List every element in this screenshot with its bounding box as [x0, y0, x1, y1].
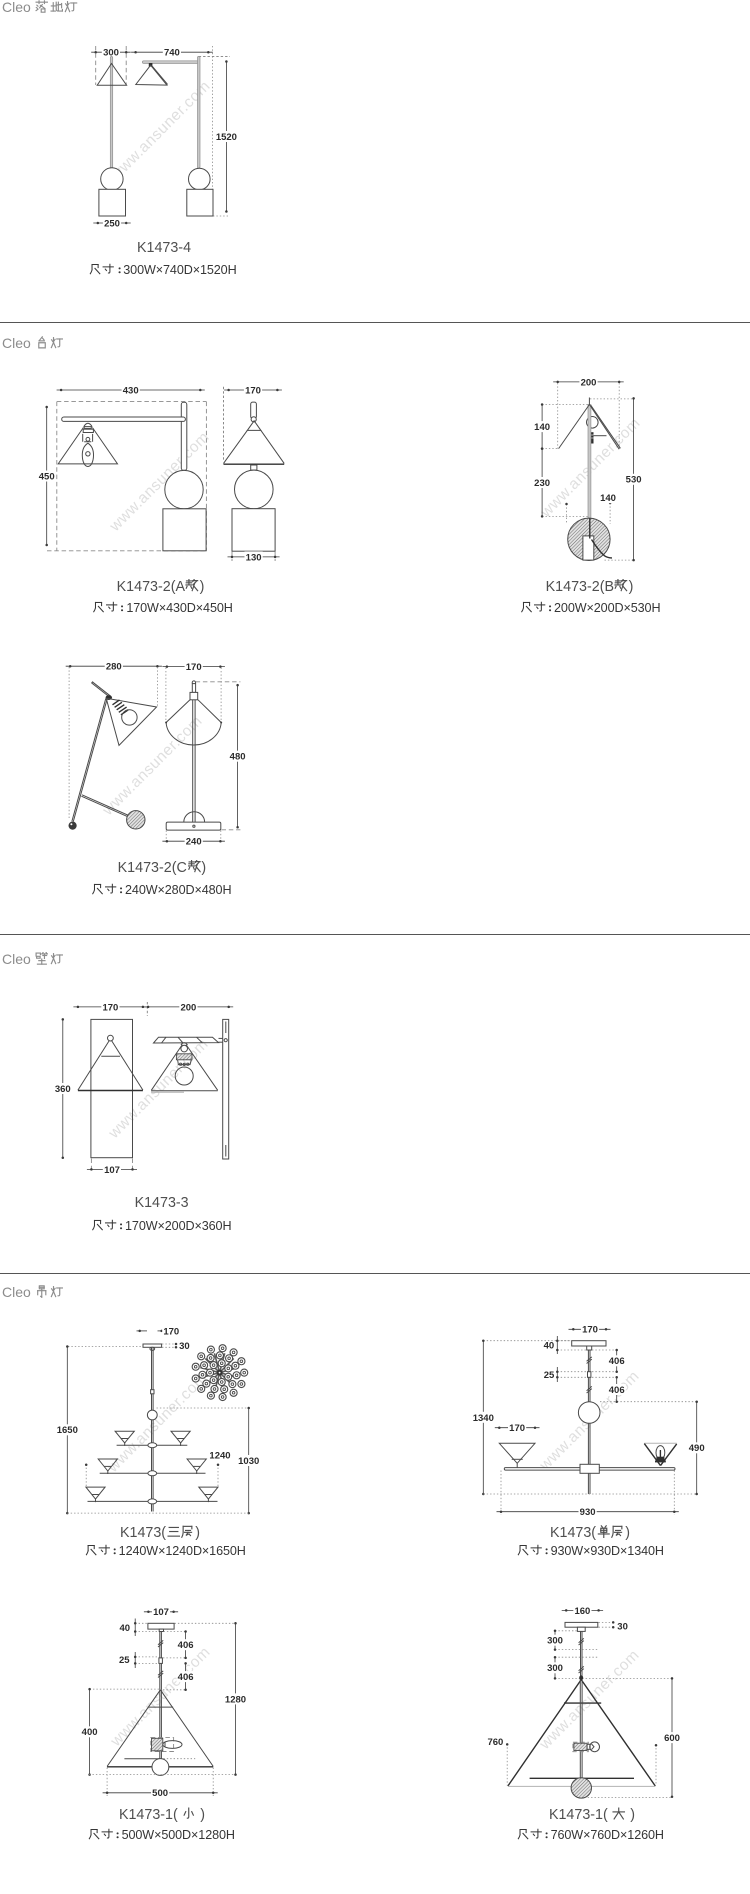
- svg-text:25: 25: [119, 1655, 130, 1666]
- svg-text:107: 107: [104, 1165, 120, 1176]
- svg-text:530: 530: [626, 475, 642, 486]
- svg-text:490: 490: [689, 1443, 705, 1454]
- svg-text:406: 406: [178, 1640, 194, 1651]
- svg-text:1650: 1650: [57, 1425, 78, 1436]
- svg-text:130: 130: [246, 552, 262, 563]
- svg-text:140: 140: [600, 493, 616, 504]
- svg-text:140: 140: [534, 422, 550, 433]
- svg-text:1340: 1340: [473, 1413, 494, 1424]
- svg-text:450: 450: [39, 471, 55, 482]
- svg-text:107: 107: [153, 1607, 169, 1618]
- svg-text:170: 170: [245, 385, 261, 396]
- svg-text:600: 600: [664, 1733, 680, 1744]
- svg-text:930: 930: [580, 1507, 596, 1518]
- svg-text:170: 170: [582, 1325, 598, 1336]
- svg-text:250: 250: [104, 218, 120, 229]
- svg-text:1520: 1520: [216, 132, 237, 143]
- svg-text:40: 40: [120, 1623, 131, 1634]
- svg-text:1030: 1030: [238, 1456, 259, 1467]
- svg-text:406: 406: [609, 1385, 625, 1396]
- svg-text:1280: 1280: [225, 1694, 246, 1705]
- svg-text:400: 400: [82, 1727, 98, 1738]
- svg-text:740: 740: [164, 48, 180, 59]
- svg-text:500: 500: [152, 1788, 168, 1799]
- svg-text:30: 30: [617, 1622, 628, 1633]
- svg-text:170: 170: [102, 1002, 118, 1013]
- svg-text:280: 280: [106, 662, 122, 673]
- svg-text:40: 40: [544, 1341, 555, 1352]
- svg-text:25: 25: [544, 1370, 555, 1381]
- svg-text:30: 30: [179, 1341, 190, 1352]
- svg-text:1240: 1240: [209, 1450, 230, 1461]
- svg-text:240: 240: [186, 837, 202, 848]
- svg-text:360: 360: [55, 1084, 71, 1095]
- svg-text:430: 430: [123, 385, 139, 396]
- svg-text:300: 300: [547, 1636, 563, 1647]
- svg-text:300: 300: [547, 1663, 563, 1674]
- svg-text:406: 406: [178, 1672, 194, 1683]
- svg-text:760: 760: [487, 1737, 503, 1748]
- svg-text:160: 160: [574, 1606, 590, 1617]
- svg-text:230: 230: [534, 478, 550, 489]
- svg-text:170: 170: [163, 1326, 179, 1337]
- svg-text:200: 200: [180, 1002, 196, 1013]
- svg-text:170: 170: [509, 1423, 525, 1434]
- svg-text:406: 406: [609, 1356, 625, 1367]
- svg-text:170: 170: [186, 662, 202, 673]
- svg-text:200: 200: [581, 377, 597, 388]
- svg-text:480: 480: [230, 752, 246, 763]
